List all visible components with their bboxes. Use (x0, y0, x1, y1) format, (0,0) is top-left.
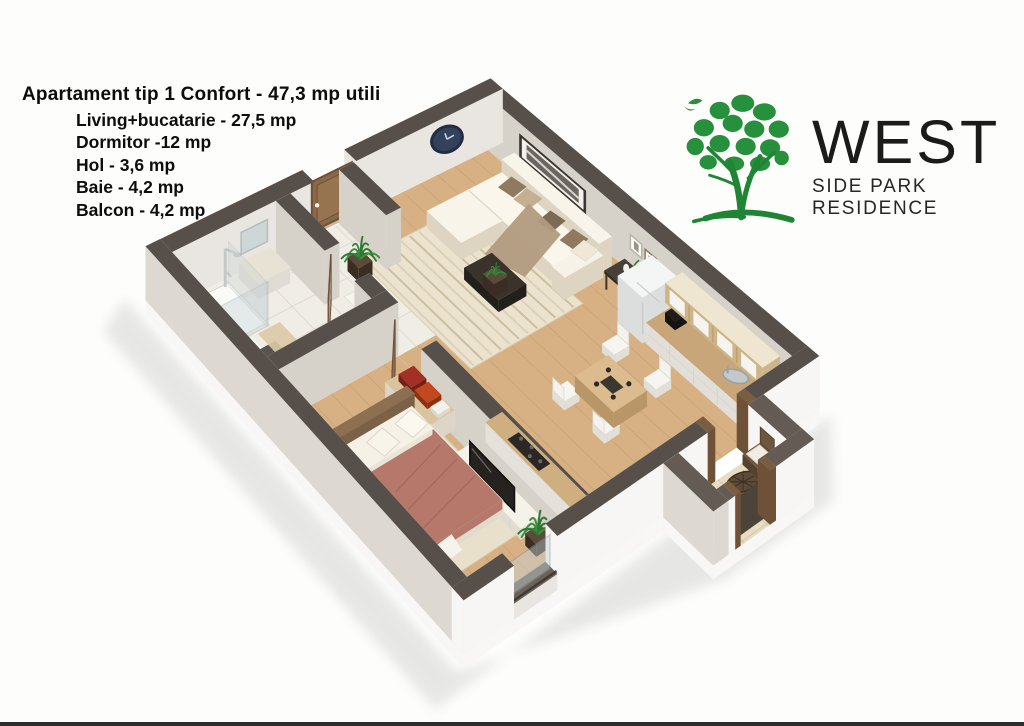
area-line-balcon: Balcon - 4,2 mp (76, 199, 380, 221)
apartment-title: Apartament tip 1 Confort - 47,3 mp utili (22, 84, 380, 106)
logo-subtitle: SIDE PARK RESIDENCE (812, 176, 1024, 220)
room-area-list: Living+bucatarie - 27,5 mp Dormitor -12 … (76, 109, 380, 221)
area-info-block: Apartament tip 1 Confort - 47,3 mp utili… (22, 84, 380, 221)
brand-logo: WEST SIDE PARK RESIDENCE (662, 86, 1024, 230)
logo-name: WEST (812, 114, 1024, 172)
page: Apartament tip 1 Confort - 47,3 mp utili… (0, 0, 1024, 726)
bottom-border-strip (0, 722, 1024, 726)
area-line-dormitor: Dormitor -12 mp (76, 131, 380, 153)
tree-logo-icon (662, 86, 812, 230)
area-line-baie: Baie - 4,2 mp (76, 176, 380, 198)
logo-text-block: WEST SIDE PARK RESIDENCE (812, 114, 1024, 220)
area-line-living: Living+bucatarie - 27,5 mp (76, 109, 380, 131)
area-line-hol: Hol - 3,6 mp (76, 154, 380, 176)
